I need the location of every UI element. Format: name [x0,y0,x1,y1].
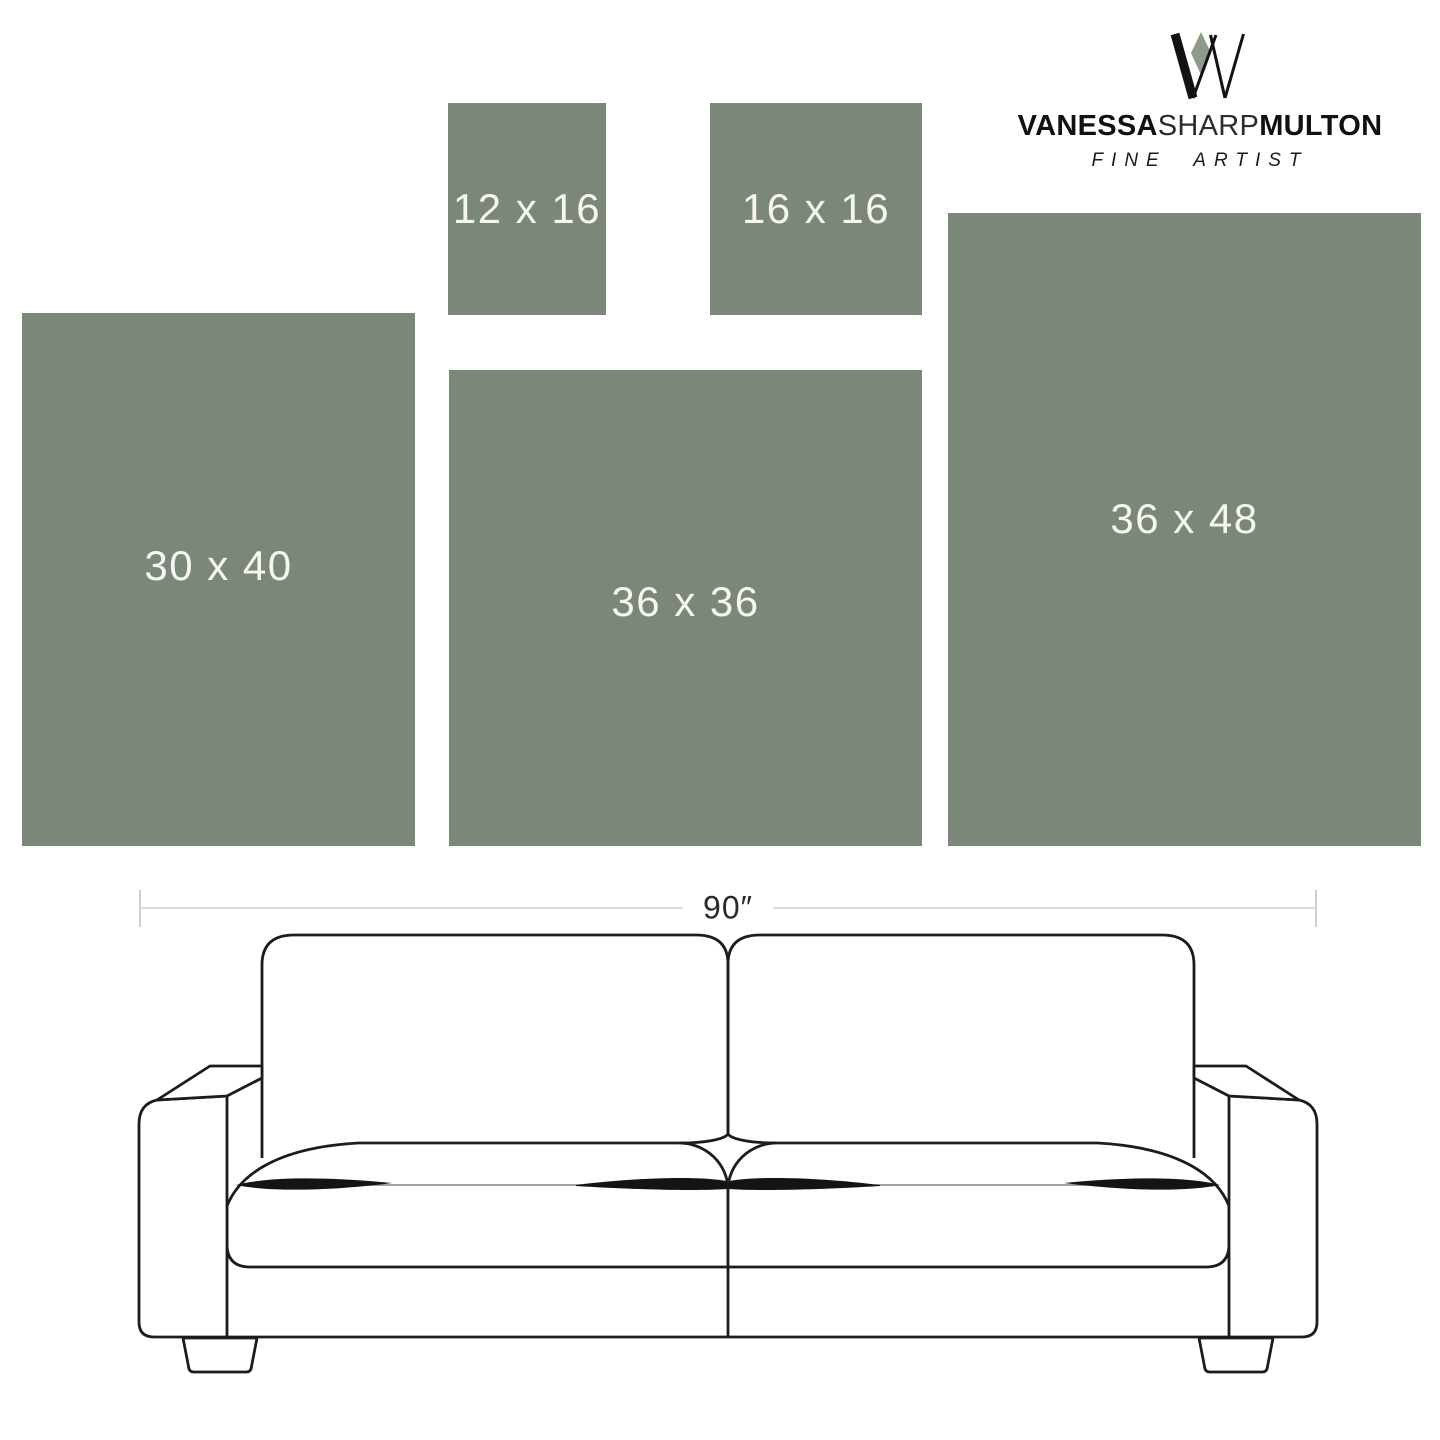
brand-monogram-icon [1145,30,1255,106]
brand-wordmark-middle: SHARP [1158,110,1259,142]
sofa-illustration [130,925,1330,1385]
size-label: 12 x 16 [453,185,601,233]
brand-tagline: FINE ARTIST [996,150,1404,172]
size-label: 36 x 48 [1110,495,1258,543]
size-label: 16 x 16 [742,185,890,233]
size-swatch-30x40: 30 x 40 [22,313,415,846]
size-swatch-36x36: 36 x 36 [449,370,922,846]
size-swatch-12x16: 12 x 16 [448,103,606,315]
brand-logo: VANESSASHARPMULTON FINE ARTIST [996,30,1404,172]
size-label: 30 x 40 [144,542,292,590]
brand-wordmark-first: VANESSA [1018,110,1158,142]
size-guide-infographic: VANESSASHARPMULTON FINE ARTIST 12 x 16 1… [0,0,1440,1440]
dimension-tick-left [139,890,141,927]
size-label: 36 x 36 [611,578,759,626]
dimension-tick-right [1315,890,1317,927]
brand-wordmark-last: MULTON [1259,110,1382,142]
size-swatch-36x48: 36 x 48 [948,213,1421,846]
sofa-width-label: 90″ [683,890,773,927]
brand-wordmark: VANESSASHARPMULTON [996,112,1404,141]
size-swatch-16x16: 16 x 16 [710,103,922,315]
